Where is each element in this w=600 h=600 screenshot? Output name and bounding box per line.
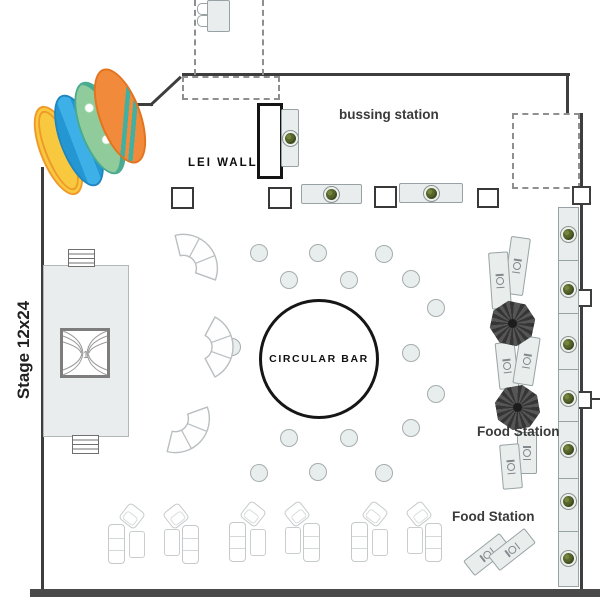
- wall: [580, 113, 583, 593]
- chafing-dish-icon: [512, 259, 522, 274]
- lei-wreath-icon: [560, 390, 577, 407]
- lei-wreath-icon: [282, 130, 299, 147]
- buffet-table: [399, 183, 463, 203]
- serpentine-sofa: [134, 376, 243, 485]
- cocktail-table: [280, 429, 298, 447]
- wall-diagonal: [149, 76, 181, 106]
- stage-curtain-icon: 1: [60, 328, 110, 378]
- lounge-sofa: [351, 522, 368, 562]
- cocktail-table: [375, 464, 393, 482]
- circular-bar: CIRCULAR BAR: [259, 299, 379, 419]
- buffet-line-divider: [559, 531, 578, 532]
- dashed-area: [512, 113, 580, 189]
- cocktail-table: [402, 419, 420, 437]
- wall: [566, 73, 569, 115]
- wall-door-square: [572, 186, 591, 205]
- lei-wreath-icon: [560, 441, 577, 458]
- cocktail-table: [375, 245, 393, 263]
- lei-wreath-icon: [560, 493, 577, 510]
- chafing-dish-icon: [506, 459, 515, 474]
- highboy-square-table: [374, 186, 397, 208]
- buffet-table: [281, 109, 299, 167]
- cocktail-table: [340, 271, 358, 289]
- highboy-square-table: [171, 187, 194, 209]
- buffet-line: [558, 207, 579, 587]
- cocktail-table: [309, 463, 327, 481]
- registration-table: [207, 0, 230, 32]
- lounge-sofa: [108, 524, 125, 564]
- lei-wreath-icon: [560, 336, 577, 353]
- cocktail-table: [427, 385, 445, 403]
- lei-wreath-icon: [560, 281, 577, 298]
- coffee-table: [129, 531, 145, 558]
- svg-text:1: 1: [83, 350, 89, 361]
- circular-bar-label: CIRCULAR BAR: [269, 353, 369, 365]
- lei-wreath-icon: [323, 186, 340, 203]
- buffet-line-divider: [559, 478, 578, 479]
- serpentine-sofa: [179, 307, 253, 387]
- highboy-square-table: [268, 187, 292, 209]
- coffee-table: [164, 529, 180, 556]
- chafing-dish-icon: [502, 358, 511, 373]
- cocktail-table: [280, 271, 298, 289]
- buffet-line-divider: [559, 421, 578, 422]
- floor-plan-canvas: bussing station LEI WALL CIRCULAR BAR St…: [0, 0, 600, 600]
- chafing-dish-icon: [523, 446, 531, 460]
- cocktail-table: [402, 344, 420, 362]
- bussing-station-label: bussing station: [339, 107, 439, 122]
- food-station-upper-label: Food Station: [477, 424, 559, 439]
- coffee-table: [407, 527, 423, 554]
- chafing-dish-icon: [496, 273, 505, 288]
- coffee-table: [372, 529, 388, 556]
- food-station-table: [499, 443, 523, 490]
- chair: [197, 15, 208, 27]
- highboy-square-table: [477, 188, 499, 208]
- lounge-sofa: [229, 522, 246, 562]
- wall: [30, 589, 600, 597]
- buffet-table: [301, 184, 362, 204]
- chair: [197, 3, 208, 15]
- dashed-area: [182, 76, 280, 100]
- lei-wall-label: LEI WALL: [188, 157, 258, 169]
- cocktail-table: [427, 299, 445, 317]
- lounge-sofa: [182, 525, 199, 564]
- cocktail-table: [250, 244, 268, 262]
- cocktail-table: [402, 270, 420, 288]
- entry-dashed-line: [194, 0, 196, 75]
- lounge-sofa: [425, 523, 442, 562]
- lei-wall: [257, 103, 283, 179]
- food-station-lower-label: Food Station: [452, 509, 534, 524]
- lei-wreath-icon: [560, 226, 577, 243]
- cocktail-table: [340, 429, 358, 447]
- lei-wreath-icon: [423, 185, 440, 202]
- buffet-line-divider: [559, 369, 578, 370]
- stage-label: Stage 12x24: [14, 280, 36, 420]
- lounge-sofa: [303, 523, 320, 562]
- coffee-table: [285, 527, 301, 554]
- coffee-table: [250, 529, 266, 556]
- buffet-line-divider: [559, 313, 578, 314]
- stage-steps: [68, 249, 95, 267]
- lei-wreath-icon: [560, 550, 577, 567]
- stage-steps: [72, 435, 99, 454]
- serpentine-sofa: [142, 203, 251, 312]
- chafing-dish-icon: [521, 353, 531, 368]
- cocktail-table: [309, 244, 327, 262]
- chafing-dish-icon: [504, 542, 520, 557]
- entry-dashed-line: [262, 0, 264, 75]
- buffet-line-divider: [559, 260, 578, 261]
- cocktail-table: [250, 464, 268, 482]
